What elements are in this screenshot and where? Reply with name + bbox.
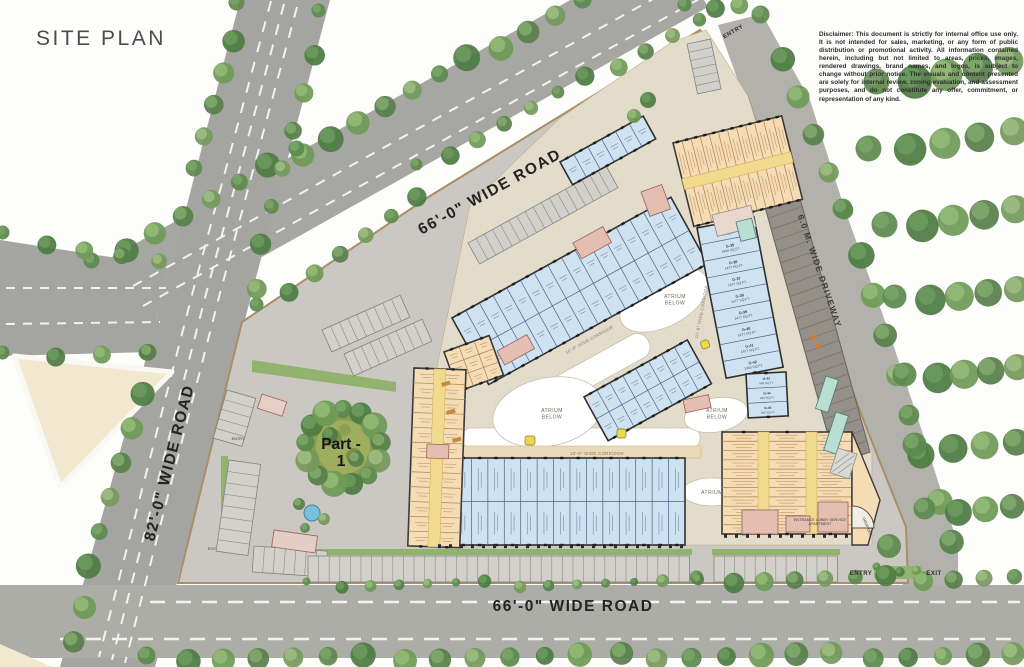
tree-icon <box>1006 356 1022 372</box>
tree-icon <box>952 362 969 379</box>
tree-icon <box>145 224 158 237</box>
tree-icon <box>976 281 993 298</box>
tree-icon <box>281 284 292 295</box>
tree-icon <box>365 581 372 588</box>
road-label-bottom: 66'-0" WIDE ROAD <box>493 598 654 615</box>
tree-icon <box>1005 431 1021 447</box>
tree-icon <box>394 580 400 586</box>
tree-icon <box>205 96 217 108</box>
tree-icon <box>352 644 367 659</box>
site-plan-page: G-34876 SQ.FT.G-351469 SQ.FT.G-361477 SQ… <box>0 0 1024 667</box>
tree-icon <box>753 7 764 18</box>
tree-icon <box>602 579 607 584</box>
tree-icon <box>490 37 505 52</box>
tree-icon <box>912 566 918 572</box>
tree-icon <box>368 450 382 464</box>
tree-icon <box>498 117 507 126</box>
exit-label-west: EXIT <box>208 547 217 551</box>
tree-icon <box>515 581 522 588</box>
tree-icon <box>666 29 675 38</box>
tree-icon <box>925 364 943 382</box>
tree-icon <box>248 280 260 292</box>
tree-icon <box>112 454 124 466</box>
tree-icon <box>349 452 359 462</box>
tree-icon <box>947 501 963 517</box>
tree-icon <box>804 125 817 138</box>
tree-icon <box>834 200 846 212</box>
tree-icon <box>455 46 471 62</box>
unit-area-label: 845 SQ.FT. <box>761 410 776 415</box>
tree-icon <box>864 649 877 662</box>
tree-icon <box>470 132 480 142</box>
tree-icon <box>941 436 958 453</box>
tree-icon <box>612 643 626 657</box>
tree-icon <box>251 298 259 306</box>
tree-icon <box>102 489 113 500</box>
road-bottom <box>0 585 1024 658</box>
tree-icon <box>348 112 362 126</box>
tree-icon <box>430 650 443 663</box>
tree-icon <box>946 572 957 583</box>
tree-icon <box>857 137 873 153</box>
atrium-label: ATRIUM <box>701 490 723 496</box>
tree-icon <box>443 147 454 158</box>
tree-icon <box>409 188 421 200</box>
tree-icon <box>547 7 559 19</box>
tree-icon <box>122 419 135 432</box>
tree-icon <box>719 648 730 659</box>
tree-icon <box>973 433 990 450</box>
tree-icon <box>573 580 579 586</box>
tree-icon <box>294 499 301 506</box>
exit-label-south: EXIT <box>926 571 941 577</box>
tree-icon <box>1008 570 1017 579</box>
tree-icon <box>873 563 878 568</box>
tree-icon <box>519 22 533 36</box>
tree-icon <box>917 286 935 304</box>
atrium-below-label: ATRIUMBELOW <box>706 408 728 421</box>
tree-icon <box>972 202 990 220</box>
tree-icon <box>224 31 238 45</box>
tree-icon <box>174 207 186 219</box>
tree-icon <box>92 524 102 534</box>
tree-icon <box>896 135 916 155</box>
tree-icon <box>875 325 889 339</box>
tree-icon <box>947 284 964 301</box>
tree-icon <box>203 191 214 202</box>
tree-icon <box>694 14 702 22</box>
tree-icon <box>611 60 622 71</box>
tree-icon <box>932 130 951 149</box>
tree-icon <box>1002 495 1017 510</box>
retail-block-g43: G-43848 SQ.FT.G-44839 SQ.FT.G-45845 SQ.F… <box>746 371 788 419</box>
tree-icon <box>967 124 985 142</box>
tree-icon <box>525 102 534 111</box>
tree-icon <box>337 582 345 590</box>
tree-icon <box>818 571 828 581</box>
unit-area-label: 848 SQ.FT. <box>759 381 774 386</box>
tree-icon <box>214 650 228 664</box>
tree-icon <box>385 210 394 219</box>
tree-icon <box>215 64 228 77</box>
tree-icon <box>404 82 416 94</box>
tree-icon <box>884 286 898 300</box>
tree-icon <box>77 243 88 254</box>
tree-icon <box>879 535 893 549</box>
tree-icon <box>894 364 908 378</box>
tree-icon <box>725 574 737 586</box>
tree-icon <box>1006 278 1022 294</box>
entry-label-west: ENTRY <box>232 437 245 441</box>
tree-icon <box>1003 643 1017 657</box>
tree-icon <box>296 85 307 96</box>
tree-icon <box>187 161 197 171</box>
tree-icon <box>707 0 718 11</box>
tree-icon <box>320 128 335 143</box>
tree-icon <box>306 46 318 58</box>
tree-icon <box>432 66 442 76</box>
tree-icon <box>249 649 262 662</box>
tree-icon <box>974 498 989 513</box>
tree-icon <box>979 359 996 376</box>
tree-icon <box>232 175 242 185</box>
tree-icon <box>850 244 866 260</box>
tree-icon <box>1002 119 1019 136</box>
tree-icon <box>751 644 766 659</box>
tree-icon <box>968 644 983 659</box>
tree-icon <box>977 571 987 581</box>
tree-icon <box>319 514 326 521</box>
tree-icon <box>641 93 651 103</box>
tree-icon <box>693 574 700 581</box>
tree-icon <box>301 524 307 530</box>
tree-icon <box>628 110 636 118</box>
tree-icon <box>544 581 551 588</box>
tree-icon <box>78 555 93 570</box>
tree-icon <box>39 237 50 248</box>
tree-icon <box>307 266 318 277</box>
tree-icon <box>900 649 912 661</box>
tree-icon <box>48 349 59 360</box>
tree-icon <box>786 644 800 658</box>
ramp-cone <box>811 335 816 340</box>
tree-icon <box>376 97 389 110</box>
tree-icon <box>822 643 835 656</box>
tree-icon <box>178 650 193 665</box>
tree-icon <box>941 531 956 546</box>
tree-icon <box>935 648 946 659</box>
tree-icon <box>657 575 665 583</box>
tree-icon <box>863 284 878 299</box>
unit-area-label: 839 SQ.FT. <box>760 395 775 400</box>
tree-icon <box>788 87 802 101</box>
tree-icon <box>631 578 636 583</box>
tree-icon <box>896 568 902 574</box>
tree-icon <box>820 164 832 176</box>
disclaimer-text: Disclaimer: This document is strictly fo… <box>819 31 1018 104</box>
tree-icon <box>298 434 309 445</box>
tree-icon <box>553 87 561 95</box>
tree-icon <box>314 402 330 418</box>
tree-icon <box>904 434 918 448</box>
tree-icon <box>320 648 331 659</box>
tree-icon <box>900 406 912 418</box>
tree-icon <box>152 254 161 263</box>
parking-row <box>308 556 690 582</box>
tree-icon <box>411 159 418 166</box>
tree-icon <box>502 649 514 661</box>
tree-icon <box>361 468 372 479</box>
tree-icon <box>139 648 150 659</box>
tree-icon <box>333 247 343 257</box>
tree-icon <box>423 579 429 585</box>
tree-icon <box>196 128 207 139</box>
tree-icon <box>75 597 89 611</box>
tree-icon <box>647 650 660 663</box>
tree-icon <box>569 644 584 659</box>
ramp-cone <box>816 344 821 349</box>
retail-block-south <box>455 457 685 546</box>
tree-icon <box>873 213 889 229</box>
tree-icon <box>313 4 321 12</box>
tree-icon <box>466 649 479 662</box>
tree-icon <box>787 572 798 583</box>
tree-icon <box>351 404 364 417</box>
tree-icon <box>115 248 125 258</box>
tree-icon <box>479 575 487 583</box>
tree-icon <box>286 123 297 134</box>
tree-icon <box>252 235 265 248</box>
tree-icon <box>94 347 105 358</box>
tree-icon <box>395 650 409 664</box>
tree-icon <box>915 499 928 512</box>
tree-icon <box>359 228 368 237</box>
tree-icon <box>285 649 297 661</box>
tree-icon <box>577 68 589 80</box>
tree-icon <box>290 141 300 151</box>
tree-icon <box>65 632 78 645</box>
tree-icon <box>683 649 695 661</box>
tree-icon <box>303 578 308 583</box>
tree-icon <box>275 162 285 172</box>
tree-icon <box>265 200 274 209</box>
tree-icon <box>297 450 311 464</box>
atrium-below-label: ATRIUMBELOW <box>664 294 686 307</box>
tree-icon <box>940 207 959 226</box>
tree-icon <box>132 383 147 398</box>
tree-icon <box>756 573 767 584</box>
entry-label-south: ENTRY <box>850 571 873 577</box>
tree-icon <box>537 648 548 659</box>
tree-icon <box>257 154 272 169</box>
tree-icon <box>1003 197 1020 214</box>
water-feature <box>304 505 320 521</box>
atrium-below-label: ATRIUMBELOW <box>541 408 563 421</box>
tree-icon <box>639 44 649 54</box>
corridor-label: 10'-8" WIDE CORRIDOR <box>570 451 624 456</box>
tree-icon <box>909 212 929 232</box>
tree-icon <box>772 48 787 63</box>
tree-icon <box>141 345 151 355</box>
tree-icon <box>372 434 384 446</box>
page-title: SITE PLAN <box>36 27 166 51</box>
tree-icon <box>452 579 457 584</box>
tree-icon <box>363 414 379 430</box>
